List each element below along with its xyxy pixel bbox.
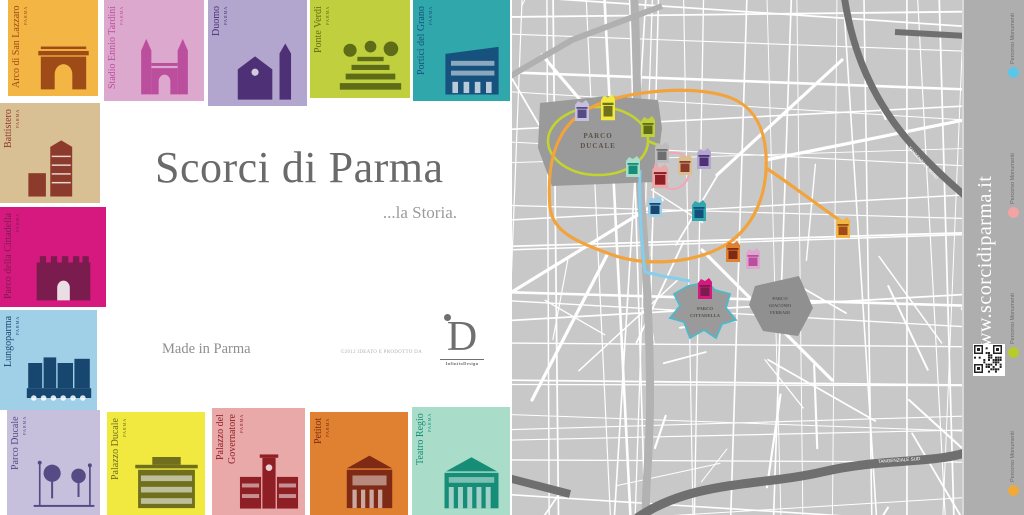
portici-illustration	[437, 16, 507, 96]
map-marker-parco-ducale	[575, 100, 589, 121]
tile-label: Teatro RegioPARMA	[415, 413, 432, 509]
map-marker-palazzo-ducale	[601, 94, 615, 120]
map-marker-battistero	[678, 154, 692, 175]
legend-label: Percorso Monumenti	[1010, 292, 1016, 344]
map-marker-arco-di-san-lazzaro	[836, 217, 850, 238]
made-in-parma: Made in Parma	[162, 341, 251, 358]
parco-ferrari-label: PARCO	[772, 296, 788, 301]
map-marker-ponte-verdi	[641, 116, 655, 137]
parco-ducale-label: PARCO	[583, 132, 612, 140]
tile-label: Parco DucalePARMA	[10, 416, 27, 509]
legend-label: Percorso Monumenti	[1010, 12, 1016, 64]
tile-arco-di-san-lazzaro: Arco di San LazzaroPARMA	[8, 0, 98, 96]
battistero-illustration	[24, 119, 97, 198]
map-marker-duomo	[697, 148, 711, 169]
parco-ferrari-label: FERRARI	[770, 310, 790, 315]
tile-label: LungoparmaPARMA	[3, 316, 20, 404]
tile-label: PetitotPARMA	[313, 418, 330, 509]
parco-ducale-label: DUCALE	[580, 142, 616, 150]
parco-cittadella-label: CITTADELLA	[690, 313, 721, 318]
tile-parco-della-cittadella: Parco della CittadellaPARMA	[0, 207, 106, 307]
tile-teatro-regio: Teatro RegioPARMA	[412, 407, 510, 515]
map-marker-parco-della-cittadella	[698, 278, 712, 299]
palazzo-ducale-illustration	[131, 428, 202, 510]
tile-label: BattisteroPARMA	[3, 109, 20, 197]
park-parco-ducale	[538, 96, 662, 186]
poster-left-panel: Arco di San LazzaroPARMA Stadio Ennio Ta…	[0, 0, 512, 515]
right-sidebar: www.scorcidiparma.it Percorso Monumenti …	[962, 0, 1024, 515]
map-marker-monumento-grigio	[655, 142, 669, 163]
tile-palazzo-del-governatore: Palazzo del GovernatorePARMA	[212, 408, 305, 515]
parco-ducale-illustration	[31, 427, 97, 510]
legend-item-pink: Percorso Monumenti	[1005, 152, 1021, 218]
tile-label: Arco di San LazzaroPARMA	[11, 6, 28, 90]
route-dot-orange	[1008, 485, 1019, 496]
stadio-illustration	[128, 16, 201, 96]
parco-cittadella-label: PARCO	[697, 306, 713, 311]
petitot-illustration	[334, 428, 405, 510]
tile-portici-del-grano: Portici del GranoPARMA	[413, 0, 510, 101]
credit-text: ©2012 IDEATO E PRODOTTO DA	[341, 350, 422, 355]
tile-lungoparma: LungoparmaPARMA	[0, 310, 97, 410]
legend-item-green: Percorso Monumenti	[1005, 292, 1021, 358]
logo-d-mark: D	[447, 316, 477, 358]
legend-item-orange: Percorso Monumenti	[1005, 430, 1021, 496]
tile-label: Parco della CittadellaPARMA	[3, 213, 20, 301]
tile-ponte-verdi: Ponte VerdiPARMA	[310, 0, 410, 98]
website-url: www.scorcidiparma.it	[974, 152, 997, 362]
poster-title: Scorci di Parma	[155, 142, 457, 193]
tangenziale-stub-road	[895, 32, 962, 36]
map-marker-petitot	[726, 241, 740, 262]
route-dot-pink	[1008, 207, 1019, 218]
tile-palazzo-ducale: Palazzo DucalePARMA	[107, 412, 205, 515]
tile-label: Portici del GranoPARMA	[416, 6, 433, 95]
ponte-verdi-illustration	[334, 16, 407, 93]
map-marker-stadio-ennio-tardini	[746, 248, 760, 269]
legend-label: Percorso Monumenti	[1010, 152, 1016, 204]
legend-label: Percorso Monumenti	[1010, 430, 1016, 482]
tile-duomo: DuomoPARMA	[208, 0, 307, 106]
tile-parco-ducale: Parco DucalePARMA	[7, 410, 100, 515]
duomo-illustration	[232, 17, 304, 101]
governatore-illustration	[236, 425, 302, 510]
city-map: PARCO DUCALE PARCO CITTADELLA PARCO GIAC…	[512, 0, 962, 515]
legend-item-blue: Percorso Monumenti	[1005, 12, 1021, 78]
poster-subtitle: ...la Storia.	[155, 203, 457, 223]
title-block: Scorci di Parma ...la Storia.	[155, 142, 457, 223]
tile-label: DuomoPARMA	[211, 6, 228, 100]
poster: Arco di San LazzaroPARMA Stadio Ennio Ta…	[0, 0, 1024, 515]
tile-petitot: PetitotPARMA	[310, 412, 408, 515]
map-marker-palazzo-del-governatore	[652, 164, 668, 188]
tile-label: Stadio Ennio TardiniPARMA	[107, 6, 124, 95]
tile-label: Ponte VerdiPARMA	[313, 6, 330, 92]
tile-battistero: BattisteroPARMA	[0, 103, 100, 203]
teatro-regio-illustration	[436, 424, 507, 510]
parco-ferrari-label: GIACOMO	[769, 303, 792, 308]
route-dot-blue	[1008, 67, 1019, 78]
infinito-design-logo: D InfinitoDesign	[440, 316, 484, 366]
map-marker-lungoparma	[648, 196, 662, 217]
route-dot-green	[1008, 347, 1019, 358]
logo-name: InfinitoDesign	[440, 359, 484, 366]
cittadella-illustration	[24, 223, 103, 302]
qr-code	[973, 344, 1005, 376]
tile-stadio-ennio-tardini: Stadio Ennio TardiniPARMA	[104, 0, 204, 101]
map-marker-portici-del-grano	[692, 200, 706, 221]
arco-illustration	[32, 15, 95, 91]
lungoparma-illustration	[24, 326, 94, 405]
tile-label: Palazzo DucalePARMA	[110, 418, 127, 509]
map-marker-teatro-regio	[626, 156, 640, 177]
